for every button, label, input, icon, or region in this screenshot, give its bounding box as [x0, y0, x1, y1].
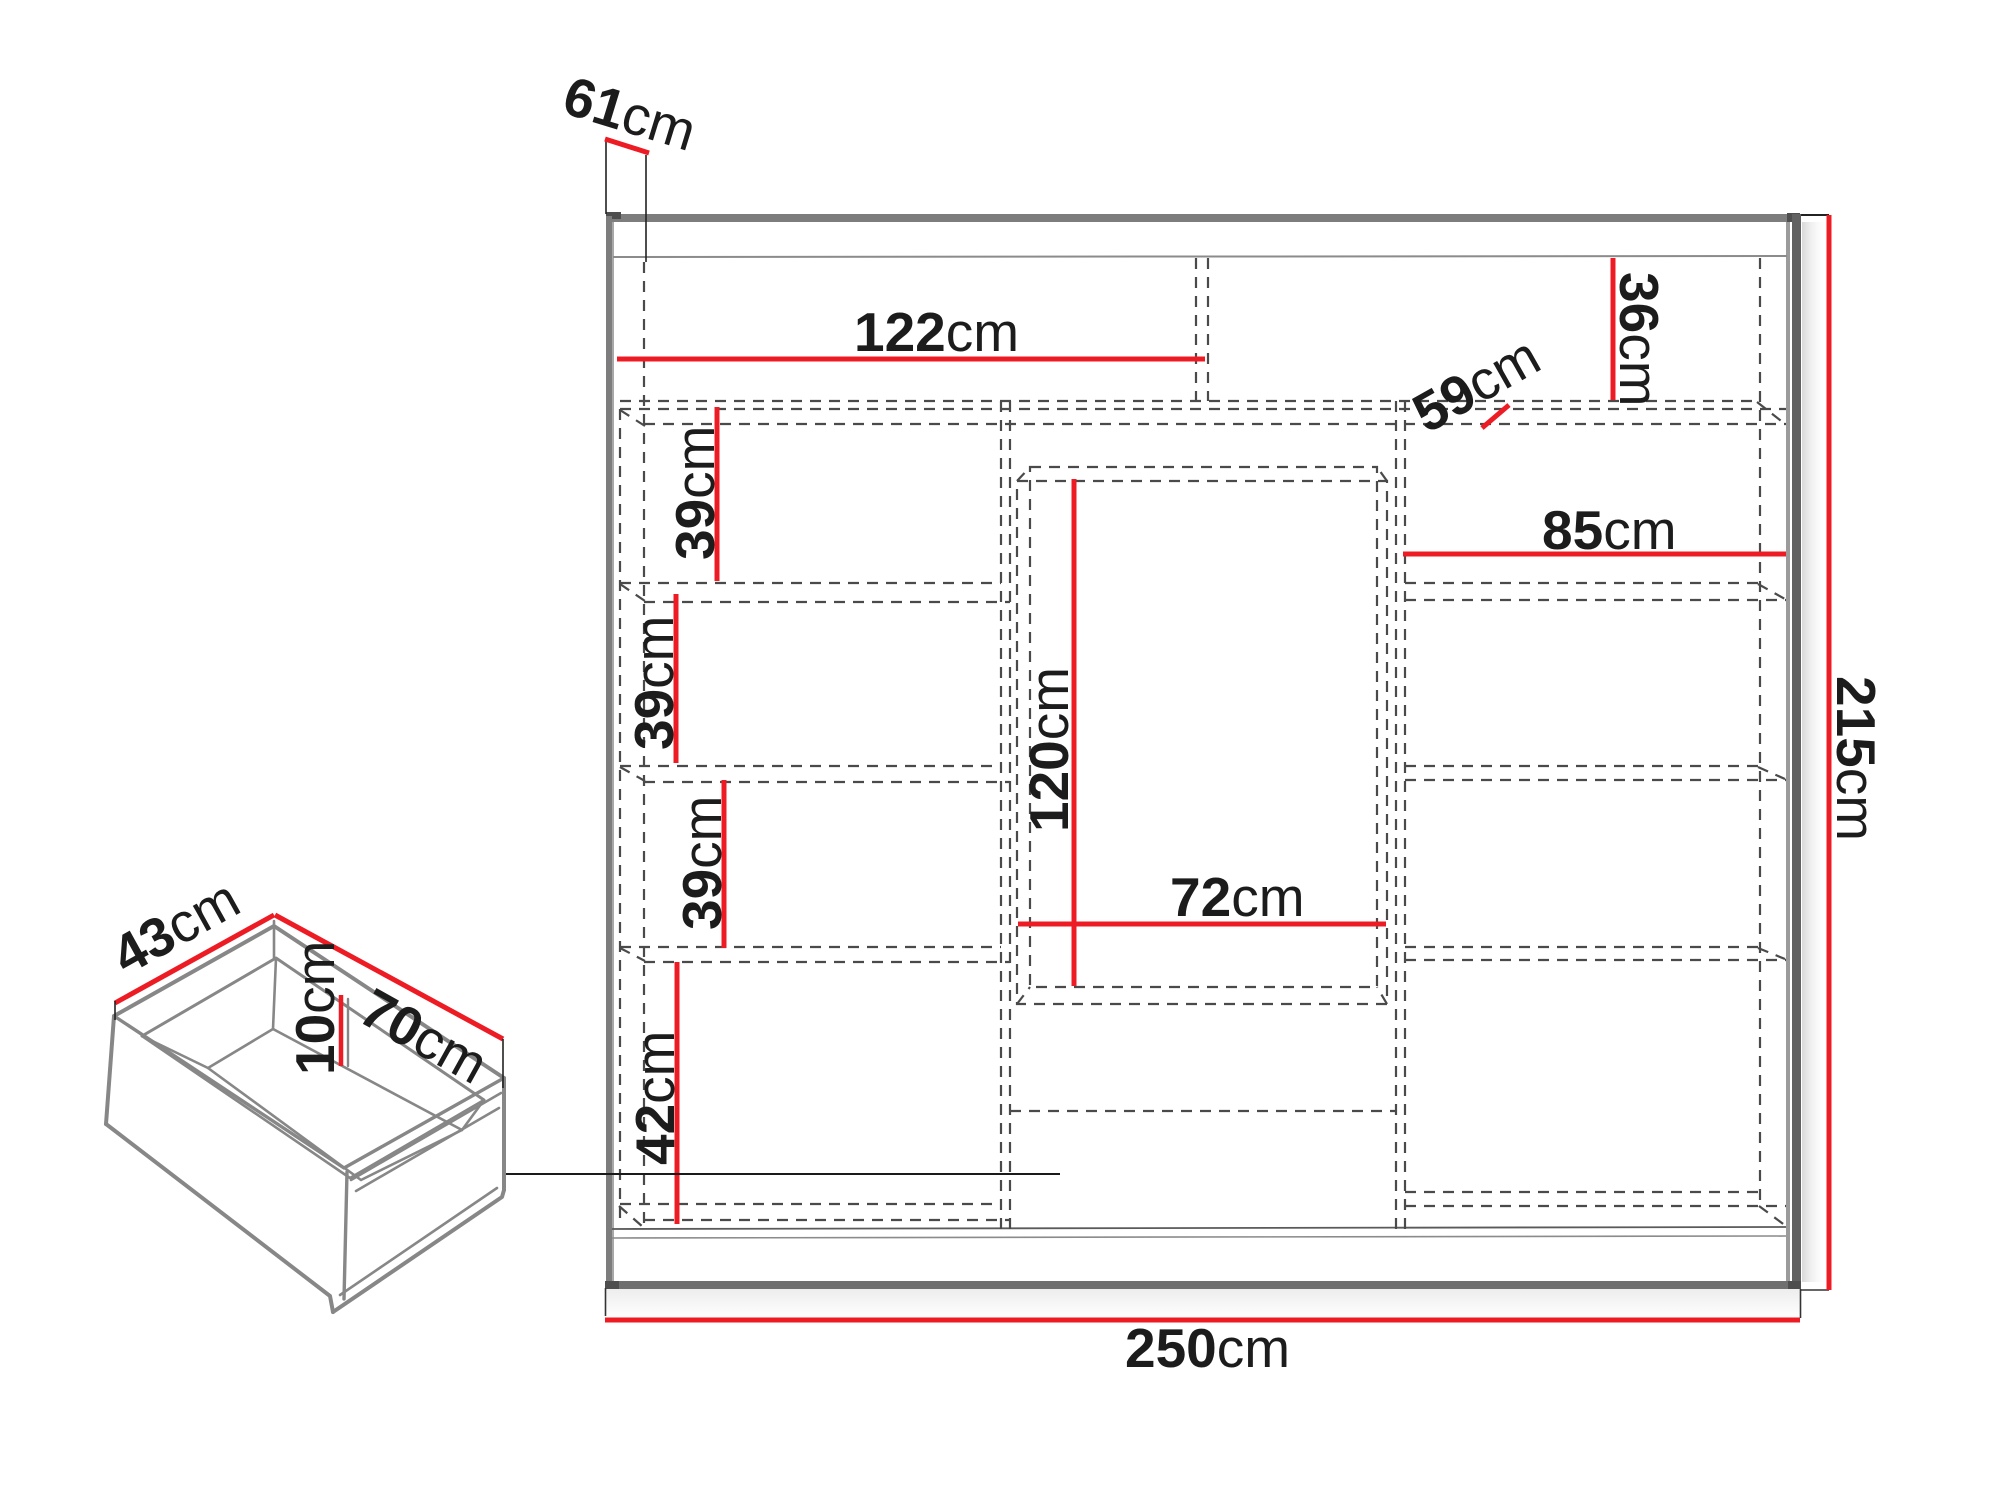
svg-text:72cm: 72cm: [1170, 866, 1305, 928]
svg-text:120cm: 120cm: [1018, 667, 1080, 832]
svg-text:39cm: 39cm: [623, 615, 685, 750]
svg-text:85cm: 85cm: [1542, 499, 1677, 561]
svg-text:250cm: 250cm: [1125, 1317, 1290, 1379]
svg-text:39cm: 39cm: [664, 425, 726, 560]
svg-text:36cm: 36cm: [1608, 272, 1670, 407]
svg-text:39cm: 39cm: [671, 795, 733, 930]
svg-text:122cm: 122cm: [854, 301, 1019, 363]
svg-text:10cm: 10cm: [284, 940, 346, 1075]
svg-text:42cm: 42cm: [624, 1030, 686, 1165]
svg-text:215cm: 215cm: [1825, 676, 1887, 841]
